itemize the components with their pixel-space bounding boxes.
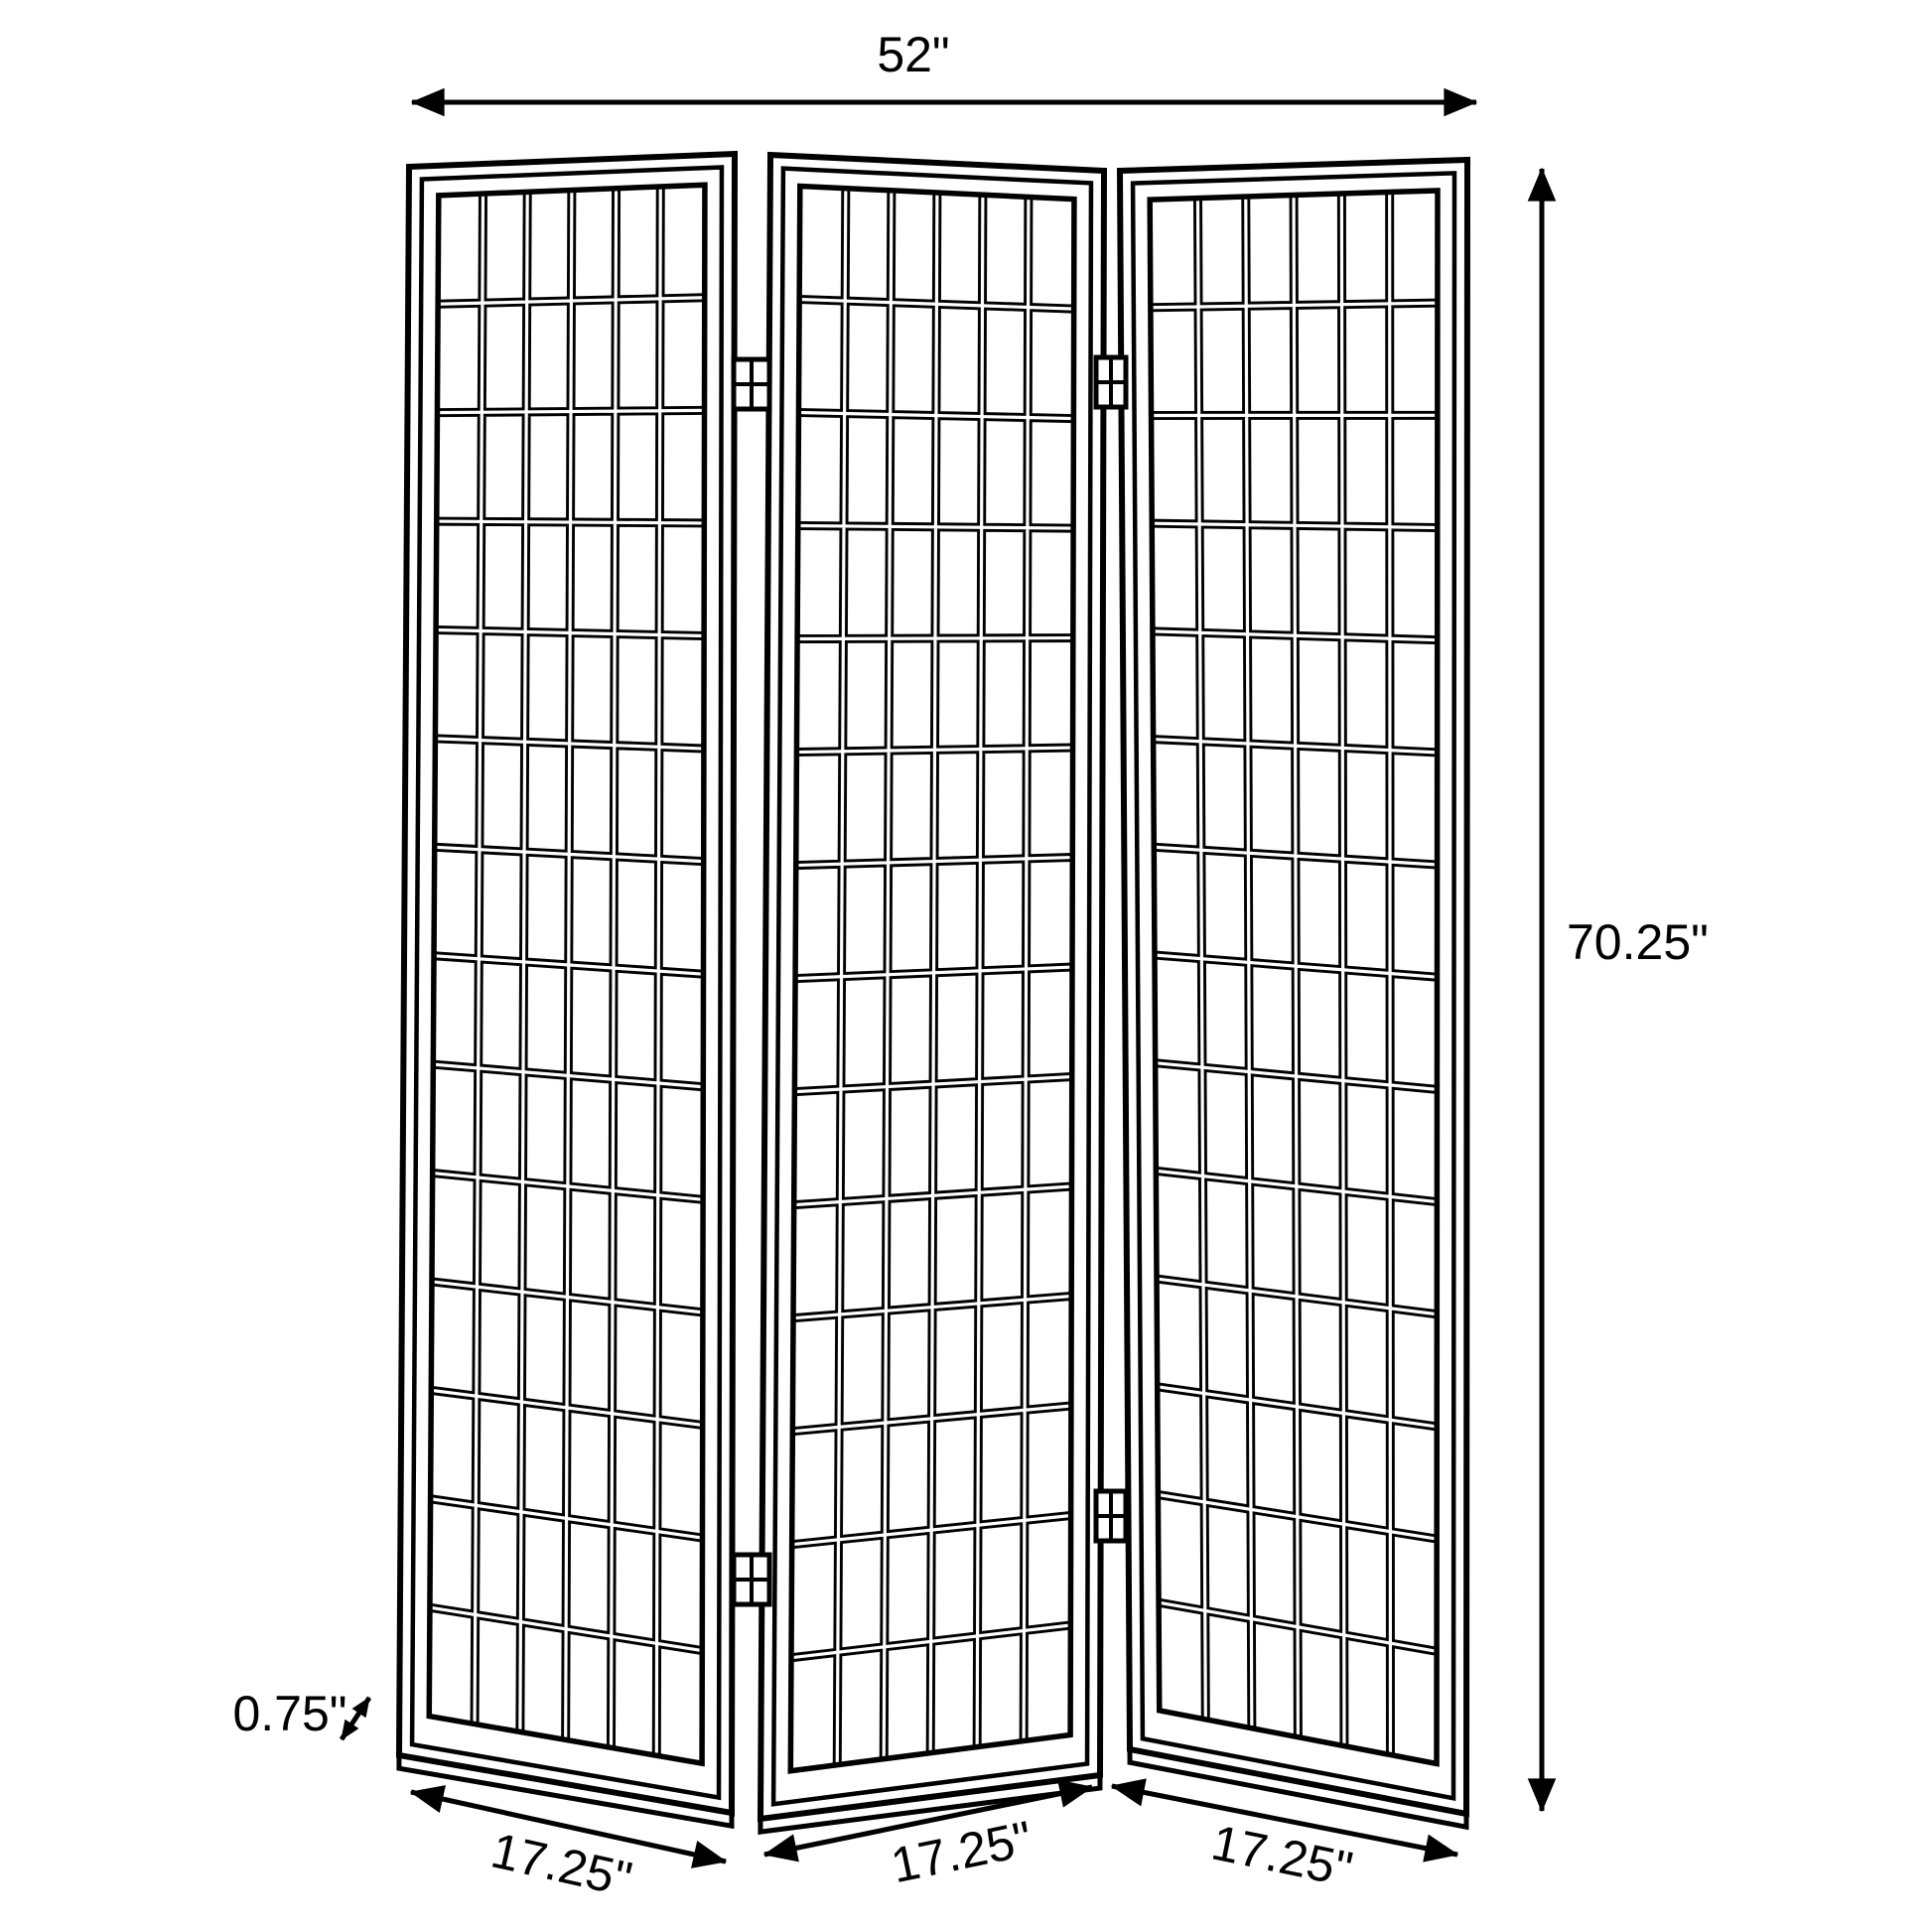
hinge-block <box>734 1555 769 1604</box>
depth-dimension: 0.75" <box>232 1686 369 1741</box>
height-dimension-label: 70.25" <box>1567 914 1709 970</box>
screen-panels <box>399 154 1467 1832</box>
hinge-block <box>1096 1491 1126 1541</box>
panel-middle <box>760 155 1104 1832</box>
panel-width-label-right: 17.25" <box>1207 1815 1357 1898</box>
depth-dimension-label: 0.75" <box>232 1686 346 1741</box>
dimension-diagram: 52" 70.25" 0.75" 17.25" 17.25" 17.25" <box>0 0 1932 1932</box>
width-dimension-label: 52" <box>877 27 949 82</box>
panel-width-dimension-left: 17.25" <box>411 1792 726 1907</box>
height-dimension: 70.25" <box>1542 169 1709 1811</box>
width-dimension: 52" <box>412 27 1476 102</box>
panel-right <box>1120 160 1467 1827</box>
hinge-block <box>734 359 769 409</box>
panel-left <box>399 154 735 1826</box>
hinge-block <box>1096 357 1126 407</box>
